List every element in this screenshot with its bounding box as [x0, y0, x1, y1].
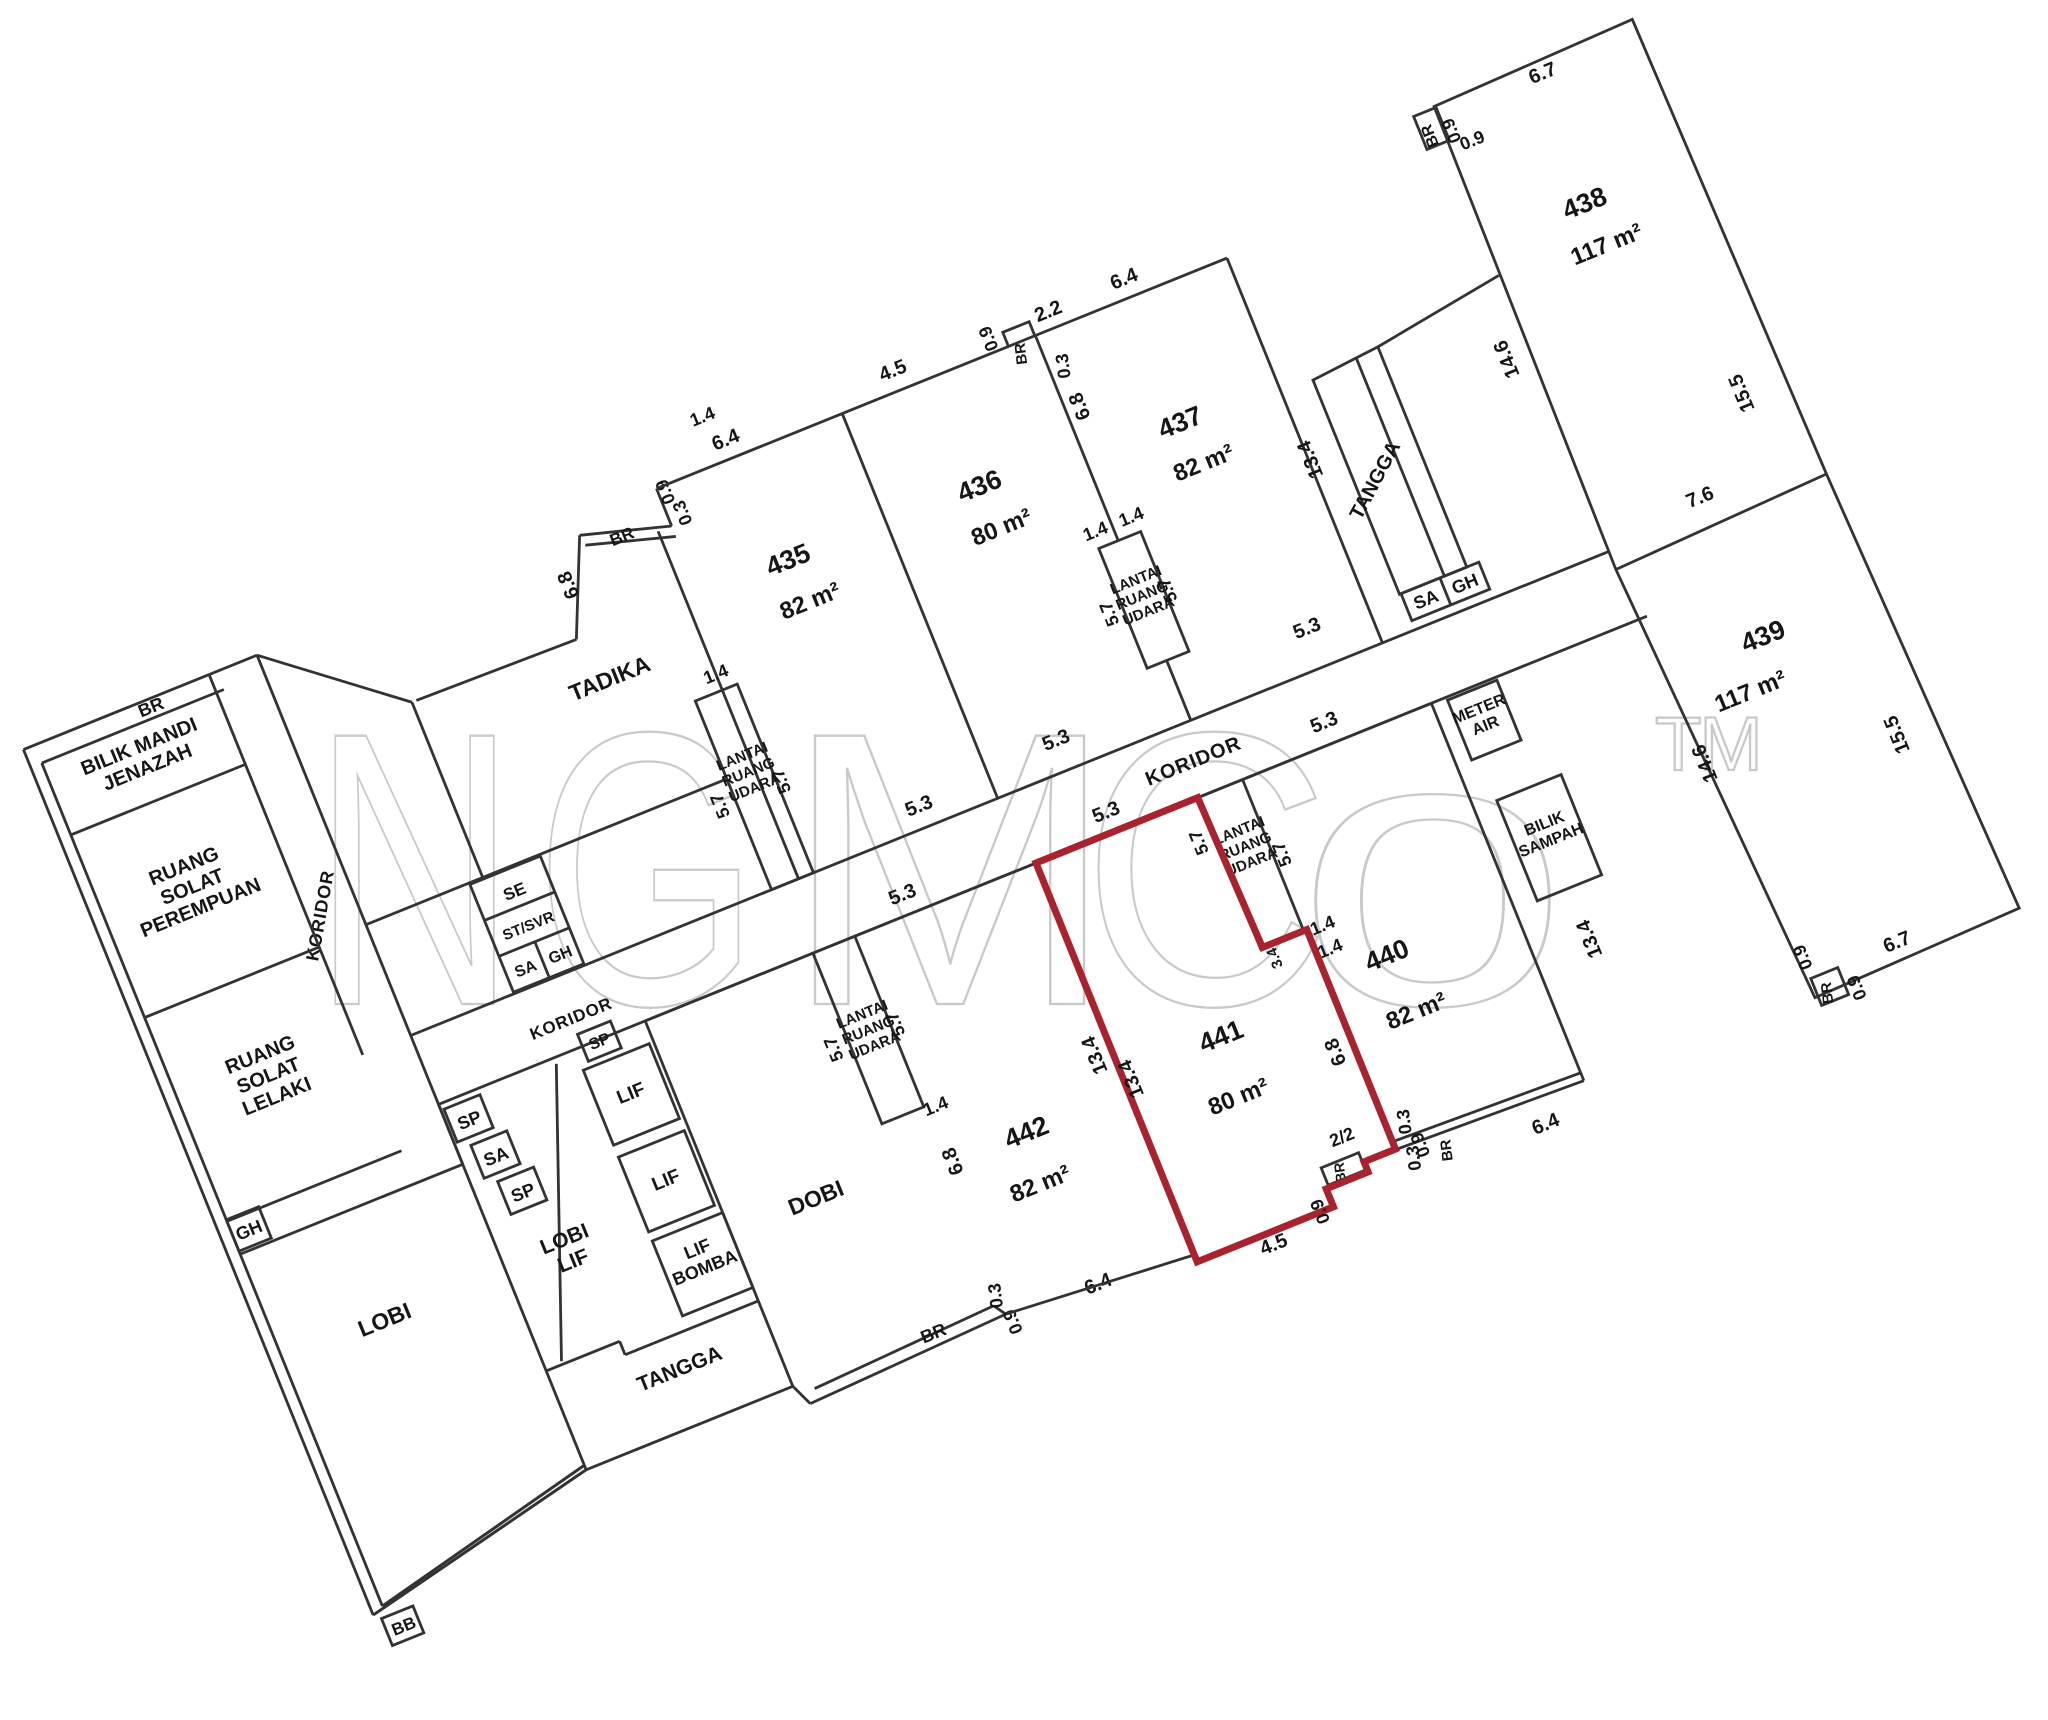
svg-text:C: C	[1081, 651, 1331, 1087]
svg-text:0.3: 0.3	[984, 1282, 1007, 1309]
svg-text:BR: BR	[1437, 1138, 1457, 1162]
svg-text:0.3: 0.3	[1052, 352, 1075, 379]
svg-text:0.3: 0.3	[1393, 1108, 1416, 1135]
svg-text:BR: BR	[1818, 981, 1838, 1005]
svg-text:BR: BR	[1012, 342, 1032, 366]
svg-text:M: M	[782, 651, 1117, 1087]
